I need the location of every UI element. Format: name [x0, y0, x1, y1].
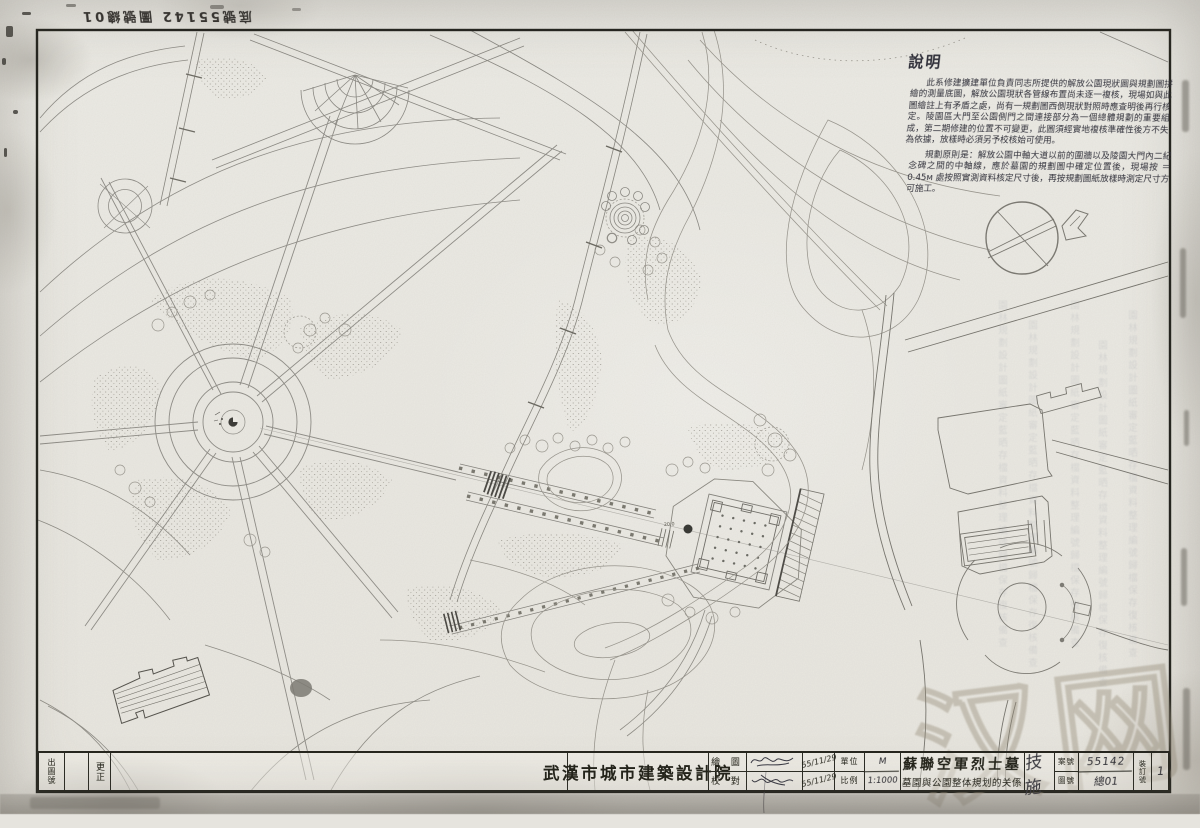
title-block: 出圖號 更正 武漢市城市建築設計院 繪 圖 校 對 55/11/29 55/11… — [37, 751, 1170, 792]
unit-label: 單位 — [835, 753, 864, 772]
archive-note-handwritten: 底號55142 圖號總01 — [61, 8, 253, 27]
edge-smudge — [1184, 410, 1189, 446]
binding-no-value: 1 — [1156, 765, 1165, 778]
pond-blob — [290, 679, 312, 697]
checked-date: 55/11/29 — [801, 772, 837, 790]
scan-speck — [292, 8, 301, 11]
unit-scale-labels: 單位 比例 — [834, 753, 864, 790]
gate-monument-dot — [684, 525, 693, 534]
drawn-label: 繪 圖 — [709, 753, 746, 772]
binding-no-label-cell: 裝訂號 — [1133, 753, 1151, 790]
unit-value: M — [864, 753, 901, 772]
notes-block: 說明 此系修建擴建單位負責同志所提供的解放公園現狀圖與規劃圖拼繪的測量底圖，解放… — [907, 51, 1170, 202]
case-drawing-values: 55142 總01 — [1078, 753, 1133, 790]
drawing-no-value: 總01 — [1078, 771, 1134, 790]
issue-no-value-cell — [64, 753, 88, 790]
scan-speck — [2, 58, 6, 65]
scan-speck — [66, 4, 76, 7]
bleedthrough-text: 園林規劃設計圖紙審定藍晒存檔資料整理編號歸檔保存復核備查 — [1122, 310, 1138, 710]
elevation-label: 20.0 — [664, 521, 675, 528]
edge-smudge — [1183, 688, 1190, 770]
drawn-signature — [747, 753, 802, 772]
notes-heading: 說明 — [907, 51, 1171, 74]
drawn-date: 55/11/29 — [801, 753, 837, 771]
project-subtitle: 墓園與公園整体規划的关係 — [902, 775, 1023, 789]
scanned-plan-sheet: 20.0 — [0, 0, 1200, 814]
project-title-cell: 蘇聯空軍烈士墓 墓園與公園整体規划的关係 — [900, 753, 1024, 790]
issue-no-cell: 出圖號 — [39, 753, 64, 790]
date-cell: 55/11/29 55/11/29 — [802, 753, 834, 790]
drawn-checked-labels: 繪 圖 校 對 — [708, 753, 746, 790]
blank-cell — [110, 753, 567, 790]
bottom-scan-band — [0, 794, 1200, 814]
scan-speck — [22, 12, 31, 15]
notes-paragraph-2: 規劃原則是：解放公園中軸大道以前的圍牆以及陵園大門內二紀念碑之間的中軸線，應於墓… — [906, 151, 1172, 198]
scan-speck — [210, 5, 224, 9]
edge-smudge — [1180, 248, 1186, 318]
edge-smudge — [1182, 80, 1189, 132]
case-no-value: 55142 — [1078, 753, 1134, 772]
drawing-no-label: 圖號 — [1055, 772, 1078, 791]
case-no-label: 案號 — [1055, 753, 1078, 772]
phase-value: 技施 — [1024, 744, 1054, 799]
scan-speck — [6, 26, 13, 37]
unit-scale-values: M 1:1000 — [864, 753, 900, 790]
scale-value: 1:1000 — [864, 771, 901, 790]
bleedthrough-text: 園林規劃設計圖紙審定藍晒存檔資料整理編號歸檔保存復核備查 — [1064, 300, 1080, 700]
scan-speck — [4, 148, 7, 157]
bleedthrough-text: 園林規劃設計圖紙審定藍晒存檔資料整理編號歸檔保存復核備查 — [992, 300, 1008, 700]
case-drawing-labels: 案號 圖號 — [1054, 753, 1078, 790]
bleedthrough-text: 園林規劃設計圖紙審定藍晒存檔資料整理編號歸檔保存復核備查 — [1092, 340, 1108, 740]
scale-label: 比例 — [835, 772, 864, 791]
correction-cell: 更正 — [88, 753, 110, 790]
institute-cell: 武漢市城市建築設計院 — [567, 753, 708, 790]
signature-cell — [746, 753, 802, 790]
edge-smudge — [30, 797, 160, 809]
issue-no-label: 出圖號 — [46, 758, 57, 785]
correction-label: 更正 — [93, 762, 106, 782]
binding-no-value-cell: 1 — [1151, 753, 1168, 790]
scan-speck — [13, 110, 18, 114]
edge-smudge — [1181, 548, 1187, 606]
institute-name: 武漢市城市建築設計院 — [543, 760, 733, 784]
notes-paragraph-1: 此系修建擴建單位負責同志所提供的解放公園現狀圖與規劃圖拼繪的測量底圖，解放公園現… — [905, 78, 1173, 148]
checked-signature — [747, 772, 802, 791]
bleedthrough-text: 園林規劃設計圖紙審定藍晒存檔資料整理編號歸檔保存復核備查 — [1022, 320, 1038, 720]
project-title: 蘇聯空軍烈士墓 — [902, 754, 1022, 774]
binding-no-label: 裝訂號 — [1138, 760, 1148, 784]
checked-label: 校 對 — [709, 772, 746, 791]
phase-cell: 技施 — [1024, 753, 1054, 790]
